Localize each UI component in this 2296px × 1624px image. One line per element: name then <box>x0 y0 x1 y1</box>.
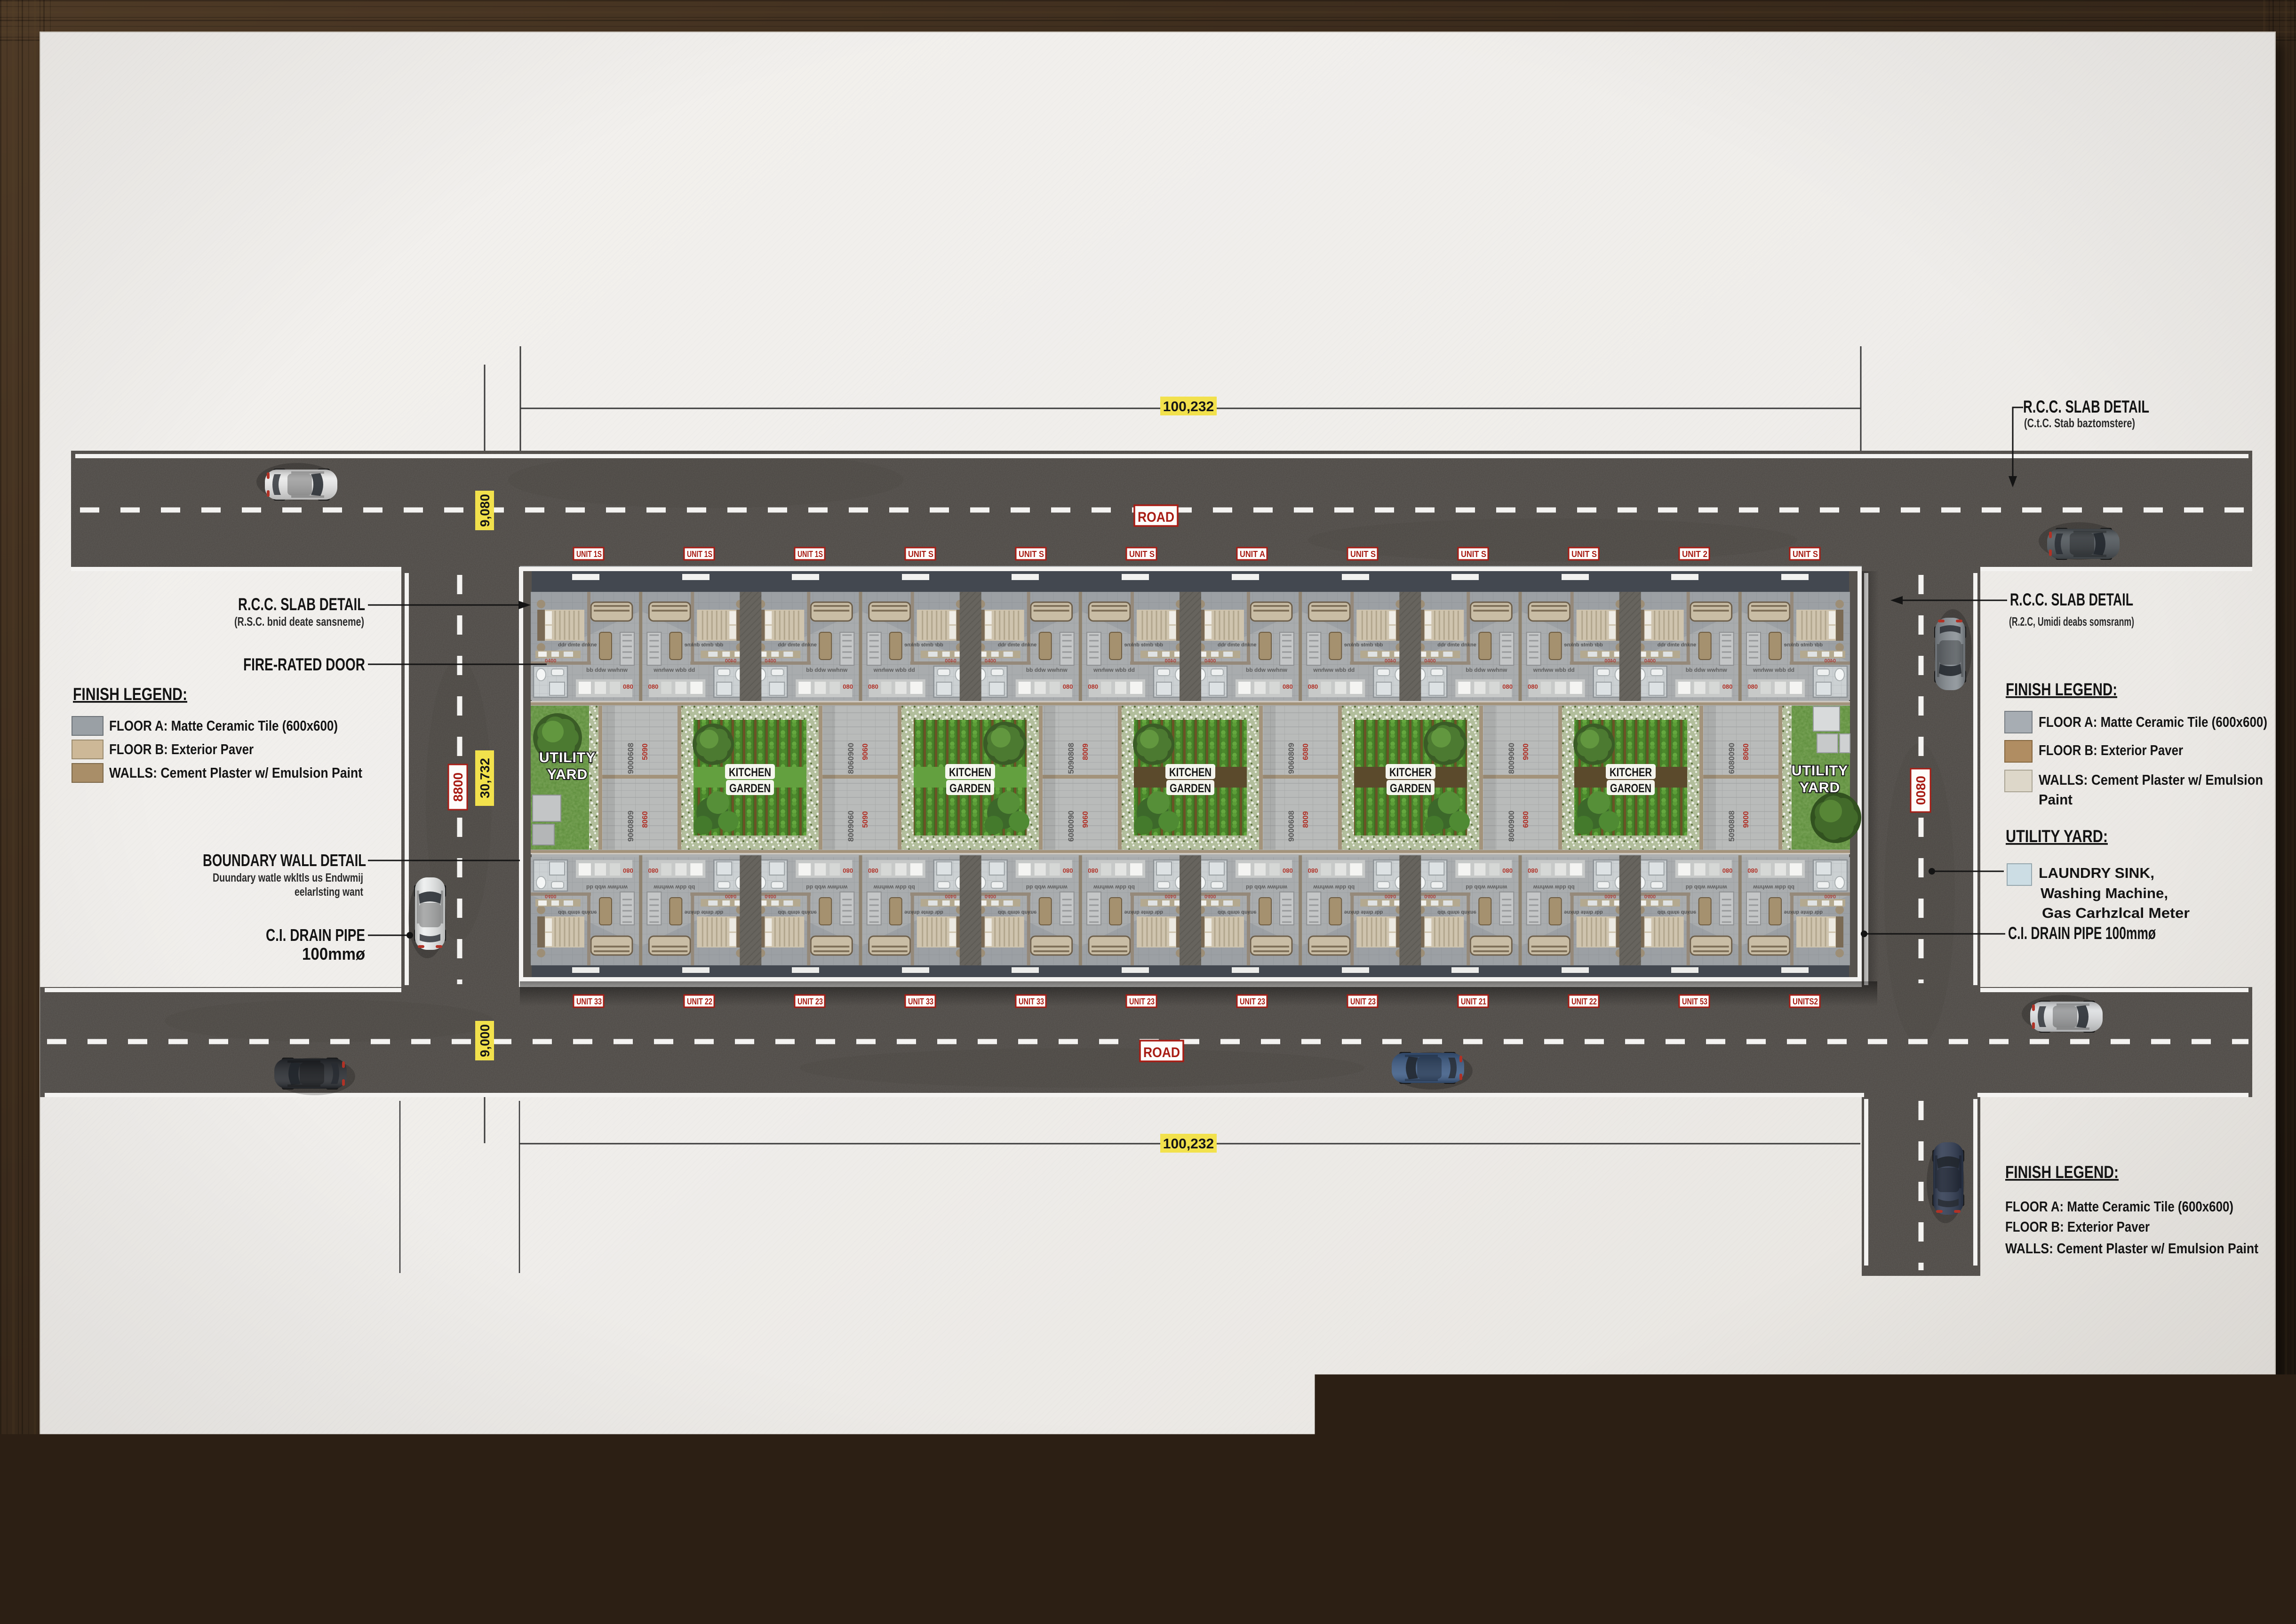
svg-text:LAUNDRY SINK,: LAUNDRY SINK, <box>2039 865 2154 881</box>
svg-text:8009: 8009 <box>1082 743 1090 760</box>
svg-text:C.I. DRAIN PIPE: C.I. DRAIN PIPE <box>266 925 365 945</box>
svg-text:UNIT 53: UNIT 53 <box>1682 997 1707 1006</box>
svg-text:GARDEN: GARDEN <box>729 782 771 795</box>
svg-text:UNIT 33: UNIT 33 <box>576 997 602 1006</box>
svg-text:5090808: 5090808 <box>1067 743 1076 774</box>
svg-text:6080: 6080 <box>1302 743 1310 760</box>
svg-text:8060900: 8060900 <box>846 743 855 774</box>
svg-text:GARDEN: GARDEN <box>1390 782 1431 795</box>
svg-text:UNIT 23: UNIT 23 <box>1129 997 1155 1006</box>
svg-text:6080: 6080 <box>1522 811 1530 828</box>
svg-text:9000: 9000 <box>1522 743 1530 760</box>
svg-text:UNIT 21: UNIT 21 <box>1461 997 1486 1006</box>
svg-text:UNIT S: UNIT S <box>1461 549 1486 559</box>
svg-text:UNIT 1S: UNIT 1S <box>687 549 712 559</box>
svg-text:(R.S.C. bnid deate sansneme): (R.S.C. bnid deate sansneme) <box>234 614 364 629</box>
svg-text:9,080: 9,080 <box>478 494 492 527</box>
svg-text:100,232: 100,232 <box>1163 1136 1214 1152</box>
svg-text:UTILITY: UTILITY <box>1792 763 1848 779</box>
svg-text:R.C.C. SLAB DETAIL: R.C.C. SLAB DETAIL <box>2010 590 2133 609</box>
svg-text:GARDEN: GARDEN <box>1170 782 1211 795</box>
svg-text:8060: 8060 <box>1742 743 1750 760</box>
svg-text:5090808: 5090808 <box>1727 811 1736 842</box>
svg-text:9060: 9060 <box>861 743 869 760</box>
svg-text:FINISH LEGEND:: FINISH LEGEND: <box>73 685 187 704</box>
svg-text:8060900: 8060900 <box>1507 811 1516 842</box>
svg-text:9060809: 9060809 <box>1287 743 1296 774</box>
svg-text:6080090: 6080090 <box>1727 743 1736 774</box>
svg-text:YARD: YARD <box>547 767 588 782</box>
svg-text:KITCHER: KITCHER <box>1389 766 1432 779</box>
svg-text:FLOOR A: Matte Ceramic Tile (6: FLOOR A: Matte Ceramic Tile (600x600) <box>2005 1198 2233 1215</box>
svg-text:FINISH LEGEND:: FINISH LEGEND: <box>2005 1162 2119 1182</box>
svg-text:UNIT 1S: UNIT 1S <box>576 549 602 559</box>
svg-text:9000608: 9000608 <box>626 743 635 774</box>
svg-text:(R.2.C, Umidi deabs somsranm): (R.2.C, Umidi deabs somsranm) <box>2009 614 2134 629</box>
svg-text:8009: 8009 <box>1302 811 1310 828</box>
svg-text:100,232: 100,232 <box>1163 399 1214 414</box>
svg-text:eelarlsting want: eelarlsting want <box>295 885 364 899</box>
svg-text:YARD: YARD <box>1800 780 1840 796</box>
svg-text:UNIT S: UNIT S <box>1129 549 1155 559</box>
svg-text:Washing Machine,: Washing Machine, <box>2041 885 2168 901</box>
svg-text:8800: 8800 <box>451 772 465 802</box>
svg-text:UNIT A: UNIT A <box>1240 549 1265 559</box>
svg-text:FLOOR B: Exterior Paver: FLOOR B: Exterior Paver <box>2039 742 2183 758</box>
svg-text:UNIT 23: UNIT 23 <box>797 997 823 1006</box>
svg-text:ROAD: ROAD <box>1143 1045 1180 1060</box>
svg-text:WALLS: Cement Plaster w/ Emuls: WALLS: Cement Plaster w/ Emulsion Paint <box>109 764 362 781</box>
svg-text:WALLS: Cement Plaster w/ Emuls: WALLS: Cement Plaster w/ Emulsion <box>2039 772 2263 788</box>
svg-text:UNIT 2: UNIT 2 <box>1682 549 1707 559</box>
svg-text:Duundary watle wkltls us Endwm: Duundary watle wkltls us Endwmij <box>213 871 363 884</box>
svg-text:5090: 5090 <box>641 743 649 760</box>
svg-text:KITCHEN: KITCHEN <box>729 766 771 779</box>
svg-text:UNIT S: UNIT S <box>1019 549 1044 559</box>
svg-text:100mmø: 100mmø <box>302 944 365 963</box>
svg-text:30,732: 30,732 <box>478 758 492 798</box>
svg-text:9,000: 9,000 <box>478 1024 492 1057</box>
svg-text:UNIT S: UNIT S <box>1350 549 1376 559</box>
svg-text:FLOOR B: Exterior Paver: FLOOR B: Exterior Paver <box>2005 1218 2150 1235</box>
svg-text:Gas Carhzlcal Meter: Gas Carhzlcal Meter <box>2042 905 2190 921</box>
svg-text:UNITS2: UNITS2 <box>1793 997 1818 1006</box>
svg-text:KITCHEN: KITCHEN <box>949 766 991 779</box>
svg-text:C.I. DRAIN PIPE 100mmø: C.I. DRAIN PIPE 100mmø <box>2008 923 2156 943</box>
svg-text:8009060: 8009060 <box>1507 743 1516 774</box>
svg-text:GARDEN: GARDEN <box>949 782 991 795</box>
svg-text:FIRE-RATED DOOR: FIRE-RATED DOOR <box>243 655 365 674</box>
svg-text:FLOOR B: Exterior Paver: FLOOR B: Exterior Paver <box>109 741 254 757</box>
svg-text:BOUNDARY WALL DETAIL: BOUNDARY WALL DETAIL <box>203 851 366 870</box>
svg-text:KITCHEN: KITCHEN <box>1169 766 1212 779</box>
svg-text:UNIT 1S: UNIT 1S <box>797 549 823 559</box>
svg-text:UNIT 23: UNIT 23 <box>1240 997 1265 1006</box>
svg-text:5090: 5090 <box>861 811 869 828</box>
svg-text:R.C.C. SLAB DETAIL: R.C.C. SLAB DETAIL <box>2023 397 2149 416</box>
svg-text:UNIT 23: UNIT 23 <box>1350 997 1376 1006</box>
svg-text:0080: 0080 <box>1913 776 1928 805</box>
svg-text:UNIT S: UNIT S <box>908 549 933 559</box>
svg-text:WALLS: Cement Plaster w/ Emuls: WALLS: Cement Plaster w/ Emulsion Paint <box>2005 1240 2258 1257</box>
svg-text:UNIT S: UNIT S <box>1793 549 1818 559</box>
svg-text:UNIT 33: UNIT 33 <box>1019 997 1044 1006</box>
svg-text:R.C.C. SLAB DETAIL: R.C.C. SLAB DETAIL <box>238 595 365 614</box>
svg-text:UNIT 22: UNIT 22 <box>1571 997 1597 1006</box>
svg-text:9060809: 9060809 <box>626 811 635 842</box>
svg-text:KITCHER: KITCHER <box>1610 766 1652 779</box>
svg-text:UTILITY: UTILITY <box>539 750 596 765</box>
svg-text:GAROEN: GAROEN <box>1610 782 1651 795</box>
svg-text:9000: 9000 <box>1742 811 1750 828</box>
svg-text:UNIT S: UNIT S <box>1571 549 1597 559</box>
svg-text:FLOOR A: Matte Ceramic Tile (6: FLOOR A: Matte Ceramic Tile (600x600) <box>109 717 338 734</box>
svg-text:8060: 8060 <box>641 811 649 828</box>
svg-text:UNIT 33: UNIT 33 <box>908 997 933 1006</box>
svg-text:(C.t.C. Stab baztomstere): (C.t.C. Stab baztomstere) <box>2024 416 2135 430</box>
svg-text:Paint: Paint <box>2039 791 2073 808</box>
svg-text:ROAD: ROAD <box>1138 509 1174 525</box>
svg-text:9060: 9060 <box>1082 811 1090 828</box>
svg-text:8009060: 8009060 <box>846 811 855 842</box>
svg-text:9000608: 9000608 <box>1287 811 1296 842</box>
svg-text:UTILITY YARD:: UTILITY YARD: <box>2006 827 2108 846</box>
svg-text:FLOOR A: Matte Ceramic Tile (6: FLOOR A: Matte Ceramic Tile (600x600) <box>2039 714 2267 730</box>
svg-text:6080090: 6080090 <box>1067 811 1076 842</box>
svg-text:UNIT 22: UNIT 22 <box>687 997 712 1006</box>
svg-text:FINISH LEGEND:: FINISH LEGEND: <box>2006 680 2117 699</box>
